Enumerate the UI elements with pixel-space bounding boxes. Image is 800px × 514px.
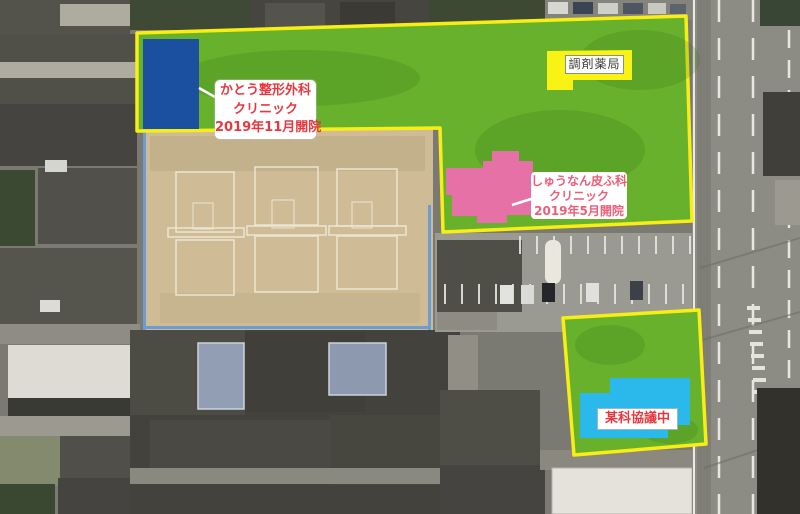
south-buildings-block (130, 330, 478, 514)
kato-clinic-label-line3: 2019年11月開院 (215, 119, 316, 138)
pharmacy-label: 調剤薬局 (565, 55, 624, 74)
kato-clinic-building-marker (143, 39, 199, 129)
main-road (692, 0, 800, 514)
dermatology-label-line1: しゅうなん皮ふ科 (531, 174, 627, 189)
dermatology-label-line3: 2019年5月開院 (531, 204, 627, 219)
dermatology-clinic-label: しゅうなん皮ふ科 クリニック 2019年5月開院 (531, 172, 627, 219)
negotiation-label: 某科協議中 (597, 408, 678, 430)
aerial-photo-background (0, 0, 800, 514)
construction-site-dirt (143, 128, 433, 330)
kato-clinic-label: かとう整形外科 クリニック 2019年11月開院 (215, 80, 316, 139)
annotated-aerial-map: かとう整形外科 クリニック 2019年11月開院 調剤薬局 しゅうなん皮ふ科 ク… (0, 0, 800, 514)
west-residential-block (0, 34, 150, 514)
kato-clinic-label-line1: かとう整形外科 (215, 82, 316, 101)
dermatology-label-line2: クリニック (531, 189, 627, 204)
kato-clinic-label-line2: クリニック (215, 101, 316, 120)
